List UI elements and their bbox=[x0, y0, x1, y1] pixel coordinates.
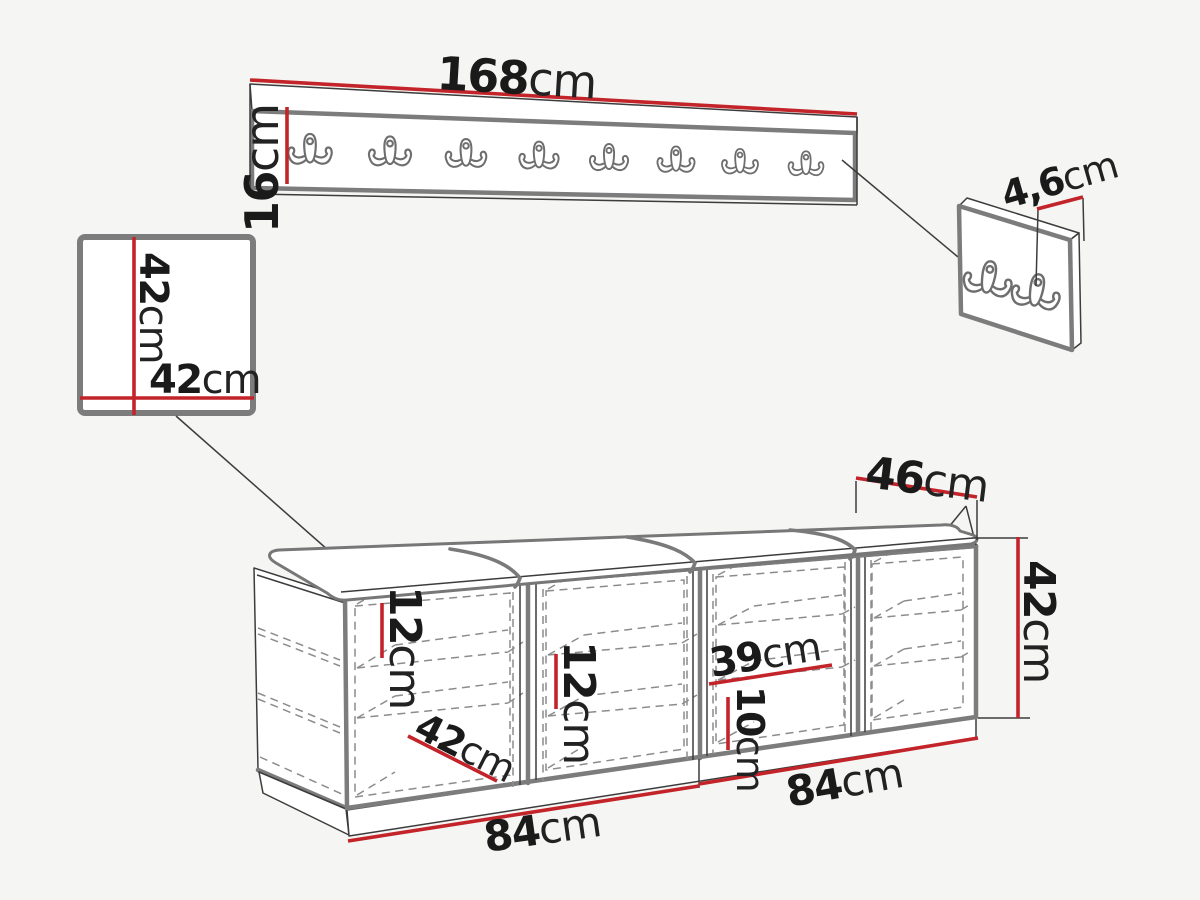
pointer-line-rack-to-panel bbox=[842, 160, 958, 257]
mirror-height-label: 42cm bbox=[130, 252, 176, 364]
rack-height-label: 16cm bbox=[235, 104, 289, 233]
furniture-dimension-diagram: 168cm 16cm 4,6cm 42cm 42cm bbox=[0, 0, 1200, 900]
rack-width-label: 168cm bbox=[435, 46, 598, 109]
mirror-panel: 42cm 42cm bbox=[80, 237, 261, 415]
pointer-line-mirror-to-bench bbox=[176, 416, 345, 565]
hook-panel: 4,6cm bbox=[959, 143, 1123, 350]
mirror-width-label: 42cm bbox=[149, 357, 261, 403]
bench-height-label: 42cm bbox=[1013, 560, 1064, 683]
shoe-bench: 46cm 42cm 12cm 12cm 39cm 10cm 42cm 84cm … bbox=[254, 447, 1064, 862]
bottom-clearance-label: 10cm bbox=[728, 686, 772, 792]
diagram-canvas: 168cm 16cm 4,6cm 42cm 42cm bbox=[0, 0, 1200, 900]
bench-depth-label: 46cm bbox=[863, 447, 992, 513]
shelf-spacing-1-label: 12cm bbox=[379, 586, 430, 709]
coat-rack: 168cm 16cm bbox=[235, 46, 857, 233]
panel-depth-label: 4,6cm bbox=[996, 143, 1122, 218]
shelf-spacing-2-label: 12cm bbox=[553, 641, 604, 764]
